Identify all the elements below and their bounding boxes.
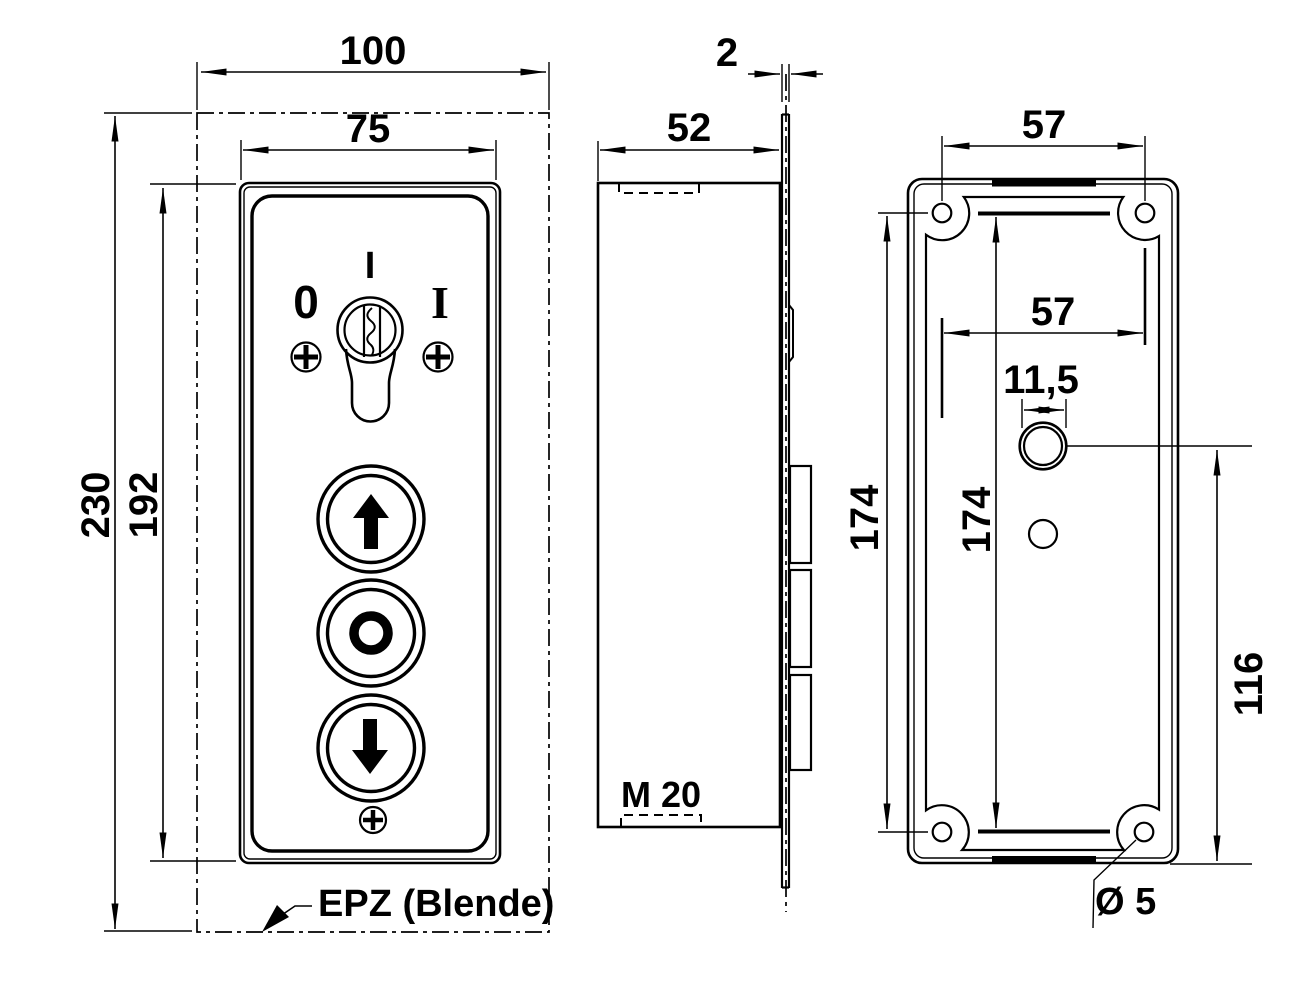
up-button-side xyxy=(790,466,811,563)
screw-right-icon xyxy=(424,343,453,372)
knockout-top-dashed xyxy=(619,183,699,193)
dim-label: 116 xyxy=(1227,652,1271,717)
screw-left-icon xyxy=(292,343,321,372)
dim-label: Ø 5 xyxy=(1095,881,1156,923)
dim-label: 192 xyxy=(122,472,166,539)
dim-front-panel-height: 192 xyxy=(122,184,236,861)
dim-front-panel-width: 75 xyxy=(241,107,496,180)
cable-hole-inner xyxy=(1024,427,1062,465)
down-arrow-icon xyxy=(352,719,388,774)
mounting-hole-top-left xyxy=(933,204,952,223)
dim-rear-hole-pitch-horizontal-inner: 57 xyxy=(944,290,1143,334)
up-arrow-icon xyxy=(353,494,389,549)
dim-label: 57 xyxy=(1022,103,1067,147)
side-view: 52 2 M 20 xyxy=(598,31,823,912)
enclosure-body-side xyxy=(598,183,780,827)
dim-plate-thickness: 2 xyxy=(716,31,823,102)
key-bitting-profile xyxy=(367,308,375,355)
screw-bottom-icon xyxy=(360,807,386,833)
key-position-top-label: I xyxy=(365,245,376,287)
dim-side-depth: 52 xyxy=(598,106,779,181)
rear-view: 57 57 174 174 11,5 116 xyxy=(843,103,1271,928)
dim-label: 100 xyxy=(340,29,407,73)
dim-label: 75 xyxy=(346,107,391,151)
dim-front-outer-width: 100 xyxy=(197,29,549,110)
dim-label: 11,5 xyxy=(1003,358,1079,402)
callout-text: EPZ (Blende) xyxy=(318,883,554,925)
dim-rear-hole-pitch-vertical: 174 xyxy=(843,213,928,832)
mounting-hole-bottom-right xyxy=(1135,823,1154,842)
mounting-hole-bottom-left xyxy=(933,823,952,842)
cable-gland-label: M 20 xyxy=(621,774,701,815)
stop-button-side xyxy=(790,570,811,667)
dim-cable-hole-offset: 116 xyxy=(1066,446,1271,864)
dim-label: 57 xyxy=(1031,290,1076,334)
dim-screw-hole-diameter: Ø 5 xyxy=(1093,840,1156,928)
drawing-canvas: I 0 I xyxy=(0,0,1299,988)
dim-label: 174 xyxy=(955,486,999,553)
dim-cable-hole-width: 11,5 xyxy=(1003,358,1079,428)
down-button xyxy=(318,695,424,801)
down-button-side xyxy=(790,675,811,770)
key-position-right-label: I xyxy=(431,277,449,328)
dim-label: 230 xyxy=(74,472,118,539)
technical-drawing-page: I 0 I xyxy=(0,0,1299,988)
stop-button xyxy=(318,580,424,686)
up-button xyxy=(318,466,424,572)
mounting-hole-top-right xyxy=(1136,204,1155,223)
key-cylinder-inner xyxy=(345,305,396,356)
key-cylinder-body xyxy=(346,349,395,422)
stop-circle-icon xyxy=(354,616,388,650)
epz-callout: EPZ (Blende) xyxy=(262,883,554,932)
small-hole xyxy=(1029,520,1057,548)
dim-label: 174 xyxy=(843,484,887,551)
front-view: I 0 I xyxy=(74,29,554,932)
key-position-left-label: 0 xyxy=(293,276,319,328)
dim-label: 52 xyxy=(667,106,712,150)
dim-rear-hole-pitch-vertical-inner: 174 xyxy=(955,217,999,828)
cable-hole-outer xyxy=(1020,423,1067,470)
key-switch: I 0 I xyxy=(292,245,453,422)
knockout-bottom-dashed xyxy=(621,815,701,827)
dim-label: 2 xyxy=(716,31,738,75)
